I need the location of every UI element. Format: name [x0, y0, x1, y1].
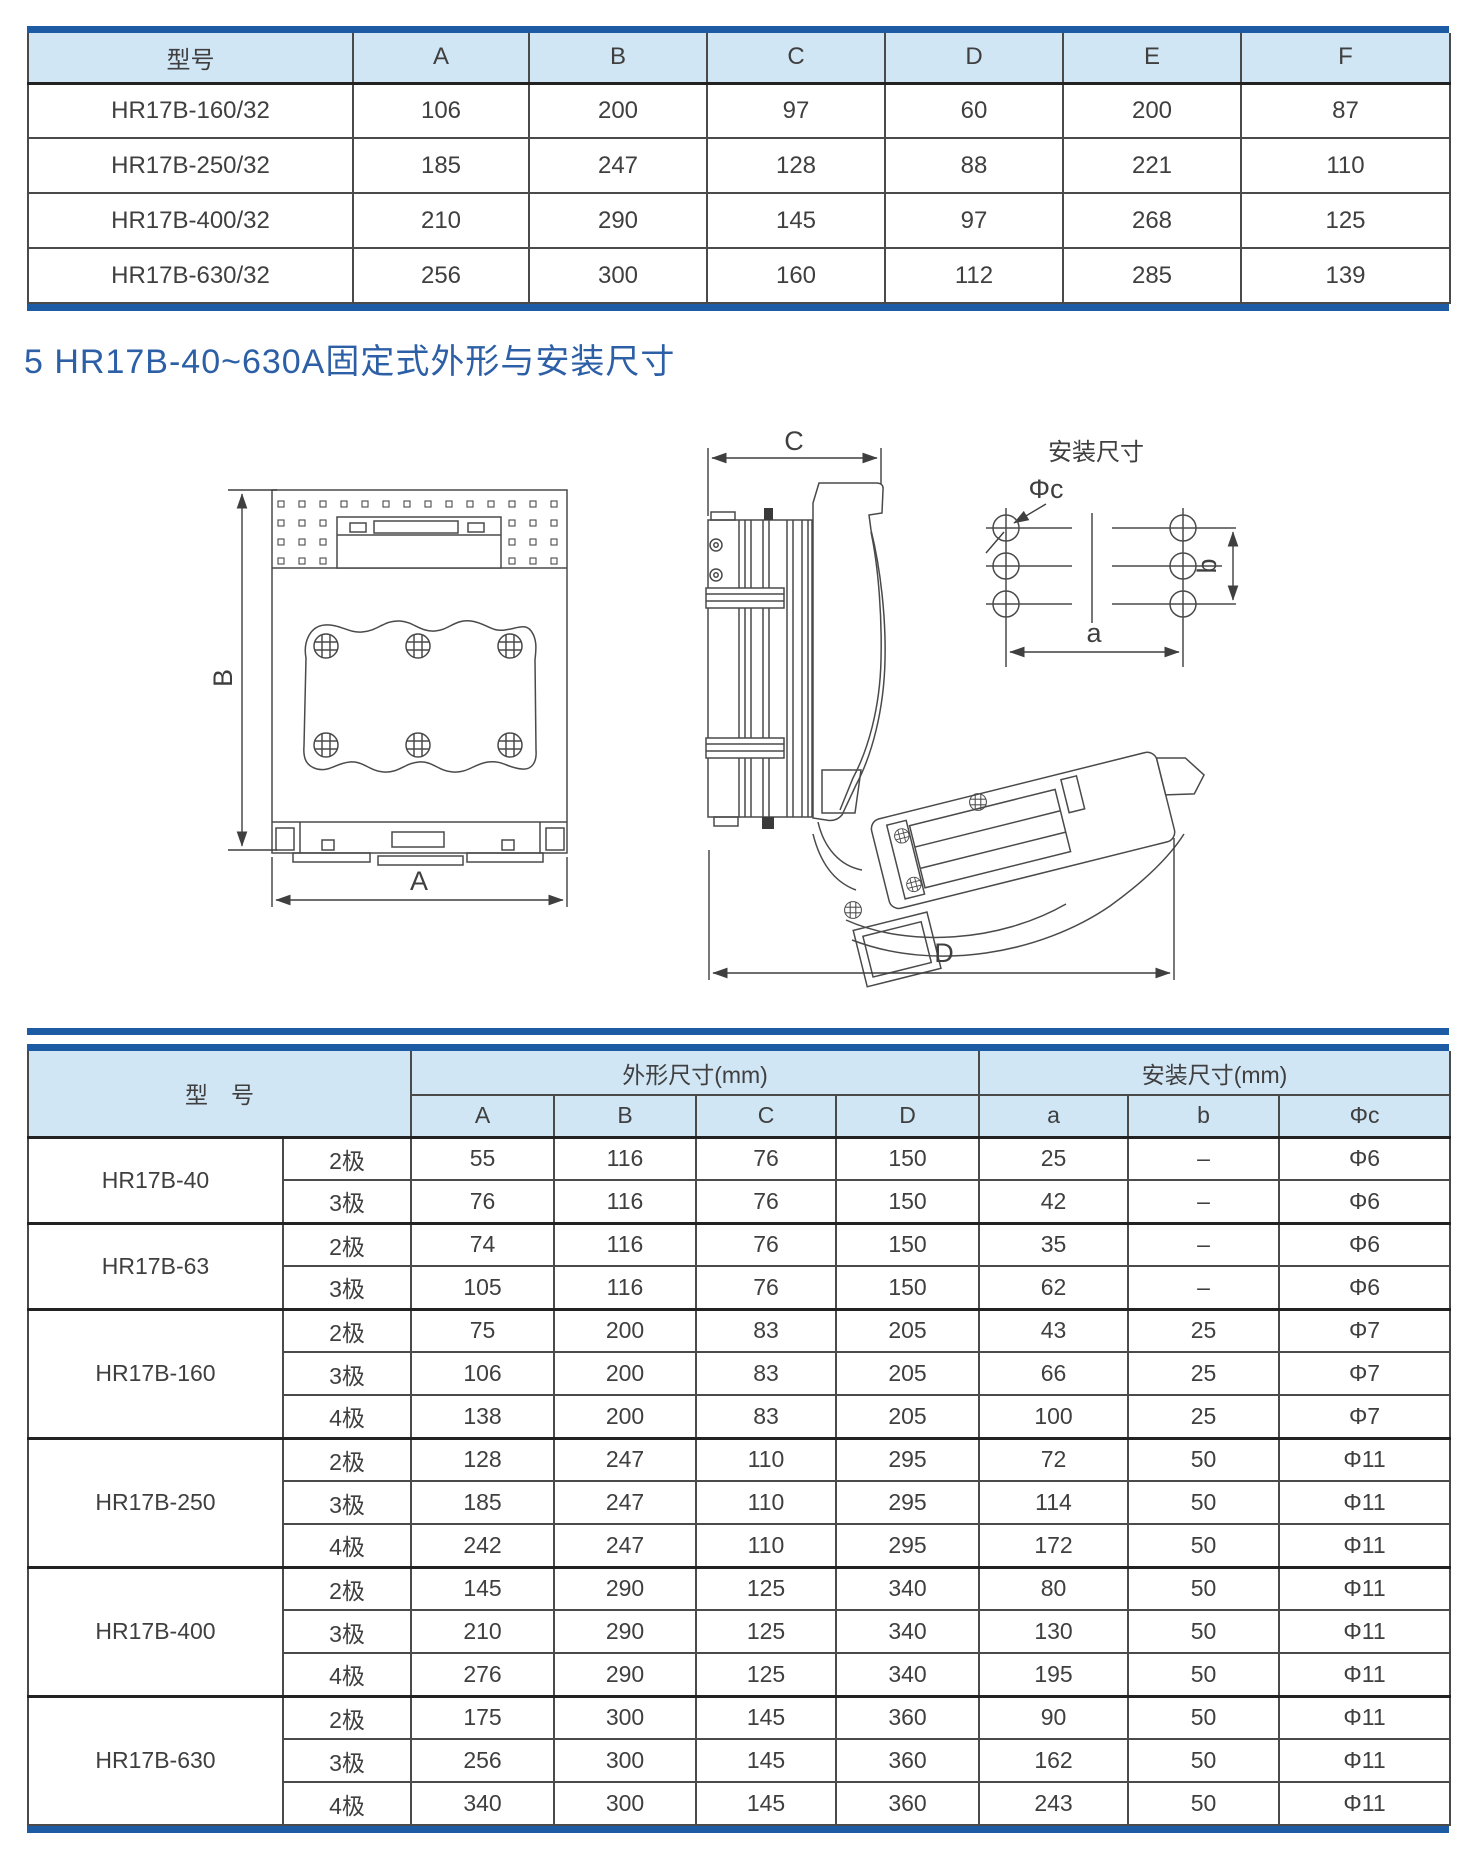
value-cell: 88 [885, 138, 1063, 193]
value-cell: 268 [1063, 193, 1241, 248]
value-cell: 195 [979, 1653, 1128, 1696]
value-cell: 116 [554, 1180, 696, 1223]
pole-count-cell: 3极 [283, 1481, 411, 1524]
value-cell: 110 [696, 1438, 836, 1481]
value-cell: 185 [411, 1481, 554, 1524]
model-cell: HR17B-630/32 [28, 248, 353, 303]
value-cell: 145 [707, 193, 885, 248]
sub-column-header: a [979, 1095, 1128, 1137]
value-cell: Φ7 [1279, 1309, 1450, 1352]
value-cell: 150 [836, 1266, 979, 1309]
table-accent-bar-top [27, 26, 1449, 33]
value-cell: 50 [1128, 1696, 1279, 1739]
value-cell: Φ11 [1279, 1696, 1450, 1739]
value-cell: – [1128, 1223, 1279, 1266]
value-cell: 110 [696, 1481, 836, 1524]
dim-table-body: HR17B-402极551167615025–Φ63极761167615042–… [28, 1137, 1450, 1825]
value-cell: Φ6 [1279, 1137, 1450, 1180]
value-cell: Φ11 [1279, 1438, 1450, 1481]
catalog-page: 型号ABCDEF HR17B-160/32106200976020087HR17… [0, 0, 1473, 1855]
pole-count-cell: 4极 [283, 1653, 411, 1696]
value-cell: 25 [979, 1137, 1128, 1180]
value-cell: 125 [696, 1567, 836, 1610]
value-cell: 66 [979, 1352, 1128, 1395]
value-cell: 128 [707, 138, 885, 193]
value-cell: 210 [353, 193, 529, 248]
table-accent-bar-bottom-2 [27, 1826, 1449, 1833]
spec-table-header-row: 型号ABCDEF [28, 33, 1450, 83]
value-cell: 50 [1128, 1653, 1279, 1696]
value-cell: 340 [411, 1782, 554, 1825]
value-cell: 50 [1128, 1739, 1279, 1782]
dim-table-row: HR17B-2502极1282471102957250Φ11 [28, 1438, 1450, 1481]
value-cell: 145 [696, 1739, 836, 1782]
value-cell: 50 [1128, 1782, 1279, 1825]
value-cell: 150 [836, 1137, 979, 1180]
column-header: E [1063, 33, 1241, 83]
value-cell: 83 [696, 1309, 836, 1352]
dim-label-b-height: B [208, 669, 238, 687]
value-cell: 50 [1128, 1524, 1279, 1567]
value-cell: 300 [554, 1782, 696, 1825]
value-cell: 145 [696, 1696, 836, 1739]
technical-drawings: B A C [0, 420, 1473, 1030]
model-cell: HR17B-160/32 [28, 83, 353, 138]
model-cell: HR17B-250 [28, 1438, 283, 1567]
column-header: A [353, 33, 529, 83]
value-cell: 360 [836, 1739, 979, 1782]
column-header: C [707, 33, 885, 83]
value-cell: 360 [836, 1696, 979, 1739]
sub-column-header: C [696, 1095, 836, 1137]
value-cell: 50 [1128, 1481, 1279, 1524]
value-cell: 25 [1128, 1352, 1279, 1395]
value-cell: 106 [411, 1352, 554, 1395]
value-cell: 50 [1128, 1610, 1279, 1653]
value-cell: 160 [707, 248, 885, 303]
value-cell: 25 [1128, 1309, 1279, 1352]
sub-column-header: A [411, 1095, 554, 1137]
value-cell: Φ11 [1279, 1567, 1450, 1610]
pole-count-cell: 2极 [283, 1223, 411, 1266]
sub-column-header: B [554, 1095, 696, 1137]
sub-column-header: Φc [1279, 1095, 1450, 1137]
model-col-header: 型 号 [28, 1051, 411, 1137]
value-cell: Φ7 [1279, 1352, 1450, 1395]
value-cell: Φ6 [1279, 1223, 1450, 1266]
dim-table-row: HR17B-6302极1753001453609050Φ11 [28, 1696, 1450, 1739]
value-cell: 300 [529, 248, 707, 303]
value-cell: Φ11 [1279, 1610, 1450, 1653]
value-cell: 116 [554, 1266, 696, 1309]
value-cell: 35 [979, 1223, 1128, 1266]
value-cell: 138 [411, 1395, 554, 1438]
pole-count-cell: 3极 [283, 1352, 411, 1395]
value-cell: – [1128, 1266, 1279, 1309]
spec-table-row: HR17B-250/3218524712888221110 [28, 138, 1450, 193]
value-cell: 125 [696, 1610, 836, 1653]
value-cell: 125 [696, 1653, 836, 1696]
value-cell: 76 [696, 1137, 836, 1180]
value-cell: 290 [554, 1653, 696, 1696]
value-cell: 83 [696, 1395, 836, 1438]
value-cell: 97 [707, 83, 885, 138]
dim-table-row: HR17B-1602极75200832054325Φ7 [28, 1309, 1450, 1352]
pole-count-cell: 3极 [283, 1266, 411, 1309]
value-cell: 50 [1128, 1438, 1279, 1481]
value-cell: 172 [979, 1524, 1128, 1567]
dim-table-row: HR17B-4002极1452901253408050Φ11 [28, 1567, 1450, 1610]
dimension-group-header: 外形尺寸(mm) [411, 1051, 979, 1095]
table-accent-bar-bottom [27, 304, 1449, 311]
value-cell: 247 [554, 1524, 696, 1567]
mounting-title: 安装尺寸 [1048, 439, 1144, 466]
pole-count-cell: 2极 [283, 1309, 411, 1352]
value-cell: Φ11 [1279, 1782, 1450, 1825]
sub-column-header: D [836, 1095, 979, 1137]
value-cell: 128 [411, 1438, 554, 1481]
spec-table-body: HR17B-160/32106200976020087HR17B-250/321… [28, 83, 1450, 303]
value-cell: 110 [1241, 138, 1450, 193]
side-view-drawing: C [706, 426, 1218, 987]
model-cell: HR17B-400/32 [28, 193, 353, 248]
column-header: F [1241, 33, 1450, 83]
value-cell: 50 [1128, 1567, 1279, 1610]
pole-count-cell: 3极 [283, 1180, 411, 1223]
value-cell: 145 [411, 1567, 554, 1610]
value-cell: 290 [554, 1610, 696, 1653]
value-cell: 360 [836, 1782, 979, 1825]
value-cell: 114 [979, 1481, 1128, 1524]
mounting-diagram: 安装尺寸 Φc b a [986, 439, 1236, 667]
sub-column-header: b [1128, 1095, 1279, 1137]
value-cell: 60 [885, 83, 1063, 138]
value-cell: 72 [979, 1438, 1128, 1481]
value-cell: 116 [554, 1223, 696, 1266]
section-divider [27, 1028, 1449, 1035]
model-column-header: 型号 [28, 33, 353, 83]
pole-count-cell: 2极 [283, 1567, 411, 1610]
value-cell: 145 [696, 1782, 836, 1825]
value-cell: 62 [979, 1266, 1128, 1309]
dim-table-group-row: 型 号 外形尺寸(mm)安装尺寸(mm) [28, 1051, 1450, 1095]
value-cell: 112 [885, 248, 1063, 303]
front-view-drawing: B A [208, 490, 567, 907]
value-cell: 340 [836, 1567, 979, 1610]
value-cell: Φ6 [1279, 1266, 1450, 1309]
model-cell: HR17B-160 [28, 1309, 283, 1438]
value-cell: 205 [836, 1352, 979, 1395]
value-cell: 242 [411, 1524, 554, 1567]
pitch-b-label: b [1192, 558, 1222, 573]
value-cell: Φ11 [1279, 1524, 1450, 1567]
dim-label-c-depth: C [784, 426, 804, 456]
value-cell: 295 [836, 1524, 979, 1567]
value-cell: 83 [696, 1352, 836, 1395]
value-cell: 247 [554, 1438, 696, 1481]
pitch-a-label: a [1086, 618, 1102, 648]
value-cell: 285 [1063, 248, 1241, 303]
value-cell: 76 [696, 1180, 836, 1223]
dimension-table-section: 型 号 外形尺寸(mm)安装尺寸(mm) ABCDabΦc HR17B-402极… [27, 1044, 1449, 1833]
spec-table-section: 型号ABCDEF HR17B-160/32106200976020087HR17… [27, 26, 1449, 311]
pole-count-cell: 2极 [283, 1137, 411, 1180]
value-cell: Φ11 [1279, 1739, 1450, 1782]
value-cell: 76 [696, 1266, 836, 1309]
value-cell: 110 [696, 1524, 836, 1567]
value-cell: 300 [554, 1739, 696, 1782]
table-accent-bar-top-2 [27, 1044, 1449, 1051]
model-cell: HR17B-250/32 [28, 138, 353, 193]
spec-table-row: HR17B-160/32106200976020087 [28, 83, 1450, 138]
value-cell: 256 [353, 248, 529, 303]
value-cell: 205 [836, 1309, 979, 1352]
pole-count-cell: 3极 [283, 1610, 411, 1653]
value-cell: 295 [836, 1481, 979, 1524]
model-cell: HR17B-63 [28, 1223, 283, 1309]
value-cell: 25 [1128, 1395, 1279, 1438]
model-cell: HR17B-630 [28, 1696, 283, 1825]
dim-label-d-total-depth: D [934, 938, 954, 968]
value-cell: – [1128, 1137, 1279, 1180]
value-cell: 340 [836, 1610, 979, 1653]
value-cell: 75 [411, 1309, 554, 1352]
pole-count-cell: 2极 [283, 1438, 411, 1481]
value-cell: 200 [529, 83, 707, 138]
value-cell: 55 [411, 1137, 554, 1180]
value-cell: 185 [353, 138, 529, 193]
value-cell: 100 [979, 1395, 1128, 1438]
value-cell: 74 [411, 1223, 554, 1266]
value-cell: 97 [885, 193, 1063, 248]
spec-table-row: HR17B-400/3221029014597268125 [28, 193, 1450, 248]
value-cell: 200 [554, 1395, 696, 1438]
pole-count-cell: 4极 [283, 1395, 411, 1438]
value-cell: Φ6 [1279, 1180, 1450, 1223]
value-cell: 221 [1063, 138, 1241, 193]
value-cell: 290 [529, 193, 707, 248]
model-cell: HR17B-400 [28, 1567, 283, 1696]
dim-table-row: HR17B-402极551167615025–Φ6 [28, 1137, 1450, 1180]
value-cell: 76 [696, 1223, 836, 1266]
value-cell: – [1128, 1180, 1279, 1223]
value-cell: 43 [979, 1309, 1128, 1352]
value-cell: 290 [554, 1567, 696, 1610]
value-cell: 200 [554, 1309, 696, 1352]
value-cell: Φ11 [1279, 1653, 1450, 1696]
value-cell: 42 [979, 1180, 1128, 1223]
model-cell: HR17B-40 [28, 1137, 283, 1223]
spec-table-row: HR17B-630/32256300160112285139 [28, 248, 1450, 303]
value-cell: 200 [1063, 83, 1241, 138]
value-cell: 295 [836, 1438, 979, 1481]
value-cell: 300 [554, 1696, 696, 1739]
value-cell: 125 [1241, 193, 1450, 248]
value-cell: 150 [836, 1223, 979, 1266]
value-cell: 256 [411, 1739, 554, 1782]
column-header: D [885, 33, 1063, 83]
value-cell: 243 [979, 1782, 1128, 1825]
value-cell: Φ11 [1279, 1481, 1450, 1524]
value-cell: 175 [411, 1696, 554, 1739]
column-header: B [529, 33, 707, 83]
dimension-table: 型 号 外形尺寸(mm)安装尺寸(mm) ABCDabΦc HR17B-402极… [27, 1051, 1451, 1826]
value-cell: 340 [836, 1653, 979, 1696]
value-cell: 80 [979, 1567, 1128, 1610]
value-cell: 247 [554, 1481, 696, 1524]
dim-table-row: HR17B-632极741167615035–Φ6 [28, 1223, 1450, 1266]
value-cell: 76 [411, 1180, 554, 1223]
dim-label-a-width: A [410, 866, 428, 896]
dimension-group-header: 安装尺寸(mm) [979, 1051, 1450, 1095]
value-cell: 90 [979, 1696, 1128, 1739]
value-cell: 130 [979, 1610, 1128, 1653]
value-cell: 276 [411, 1653, 554, 1696]
hole-diameter-label: Φc [1028, 474, 1063, 504]
value-cell: 116 [554, 1137, 696, 1180]
value-cell: 139 [1241, 248, 1450, 303]
pole-count-cell: 2极 [283, 1696, 411, 1739]
value-cell: 162 [979, 1739, 1128, 1782]
section-heading: 5 HR17B-40~630A固定式外形与安装尺寸 [24, 334, 675, 383]
value-cell: 200 [554, 1352, 696, 1395]
pole-count-cell: 4极 [283, 1524, 411, 1567]
spec-table: 型号ABCDEF HR17B-160/32106200976020087HR17… [27, 33, 1451, 304]
value-cell: 247 [529, 138, 707, 193]
value-cell: 106 [353, 83, 529, 138]
pole-count-cell: 3极 [283, 1739, 411, 1782]
value-cell: 205 [836, 1395, 979, 1438]
value-cell: Φ7 [1279, 1395, 1450, 1438]
value-cell: 105 [411, 1266, 554, 1309]
value-cell: 210 [411, 1610, 554, 1653]
pole-count-cell: 4极 [283, 1782, 411, 1825]
value-cell: 87 [1241, 83, 1450, 138]
value-cell: 150 [836, 1180, 979, 1223]
